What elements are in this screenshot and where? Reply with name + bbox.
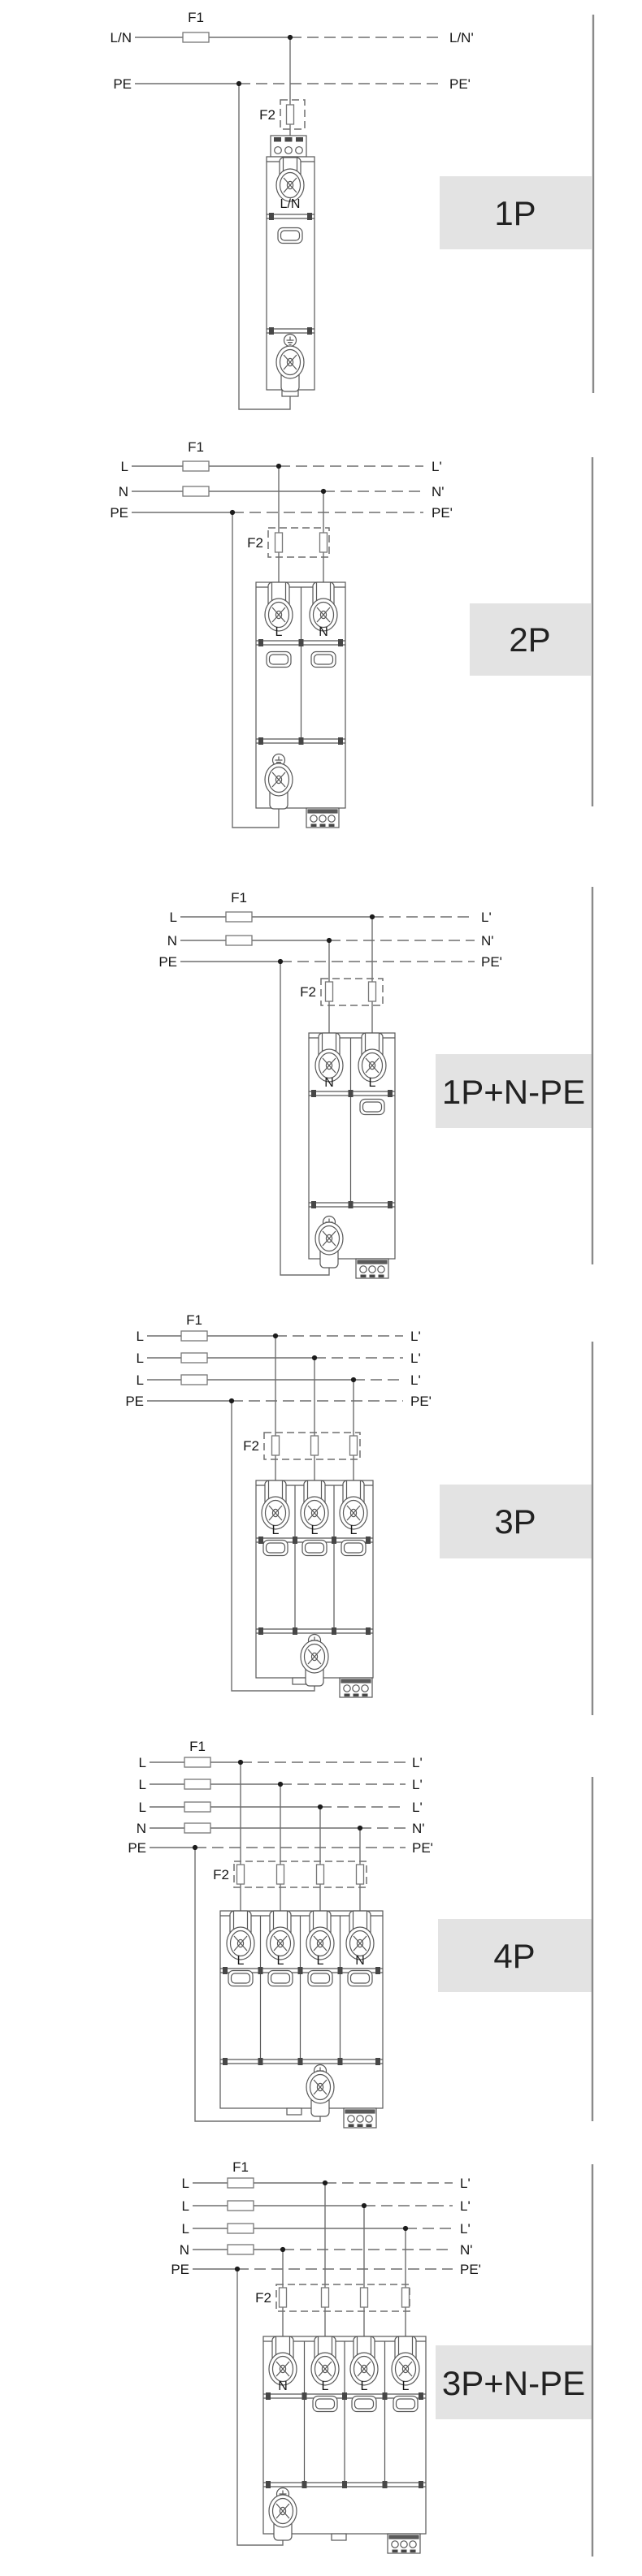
section-4p: L L' L L' L L' N N' PE PE' F1 F2 L L L N… [128, 1739, 592, 2128]
bottom-connector [306, 808, 339, 828]
indicator-window [311, 652, 336, 668]
supply-line-dashed [232, 1336, 403, 1401]
clip [258, 1537, 263, 1544]
line-label-left: PE [110, 505, 128, 521]
f1-label: F1 [188, 439, 204, 455]
line-label-right: PE' [449, 76, 471, 92]
f2-label: F2 [259, 107, 275, 123]
f1-fuse-icon [184, 1757, 210, 1767]
f2-fuse-icon [350, 1436, 358, 1455]
line-label-right: L' [460, 2221, 471, 2237]
line-label-left: L/N [111, 30, 132, 45]
indicator-window [348, 1971, 372, 1986]
junction-dot [229, 1398, 234, 1403]
badge-label: 3P+N-PE [442, 2364, 585, 2402]
supply-line-solid [180, 917, 372, 962]
badge-label: 2P [509, 620, 550, 659]
clip [293, 1537, 297, 1544]
f2-fuse-icon [237, 1865, 245, 1884]
f2-label: F2 [300, 984, 316, 1000]
f2-label: F2 [247, 535, 263, 551]
f1-fuse-icon [181, 1331, 207, 1341]
clip [332, 1627, 336, 1635]
line-label-left: L [137, 1329, 144, 1344]
junction-dot [351, 1377, 356, 1382]
supply-line-solid [135, 37, 290, 84]
clip [299, 737, 304, 745]
line-label-right: L' [412, 1777, 423, 1792]
clip [366, 1537, 371, 1544]
junction-dot [278, 959, 283, 964]
f1-fuse-icon [184, 1802, 210, 1812]
screw-terminal-icon [265, 763, 293, 796]
clip [223, 2058, 228, 2065]
junction-dot [288, 35, 293, 40]
clip [366, 1627, 371, 1635]
bottom-connector [340, 1678, 372, 1697]
f2-fuse-icon [369, 982, 376, 1001]
badge-label: 4P [493, 1937, 535, 1975]
f2-fuse-box [276, 2284, 410, 2311]
terminal-label: L [311, 1524, 319, 1537]
junction-dot [403, 2226, 408, 2231]
clip [269, 213, 274, 220]
screw-terminal-icon [306, 2071, 334, 2103]
section-3pn-pe: L L' L L' L L' N N' PE PE' F1 F2 N L L L… [171, 2159, 592, 2557]
f2-fuse-icon [361, 2288, 368, 2307]
f1-fuse-icon [184, 1823, 210, 1833]
line-label-right: PE' [412, 1840, 433, 1856]
f1-label: F1 [186, 1312, 202, 1328]
screw-terminal-icon [315, 1222, 343, 1255]
f1-fuse-icon [183, 461, 209, 471]
indicator-window [228, 1971, 253, 1986]
terminal-label: L [272, 1524, 280, 1537]
line-label-right: L' [410, 1351, 421, 1366]
f1-label: F1 [231, 890, 247, 905]
indicator-window [278, 228, 302, 244]
clip [383, 2392, 388, 2400]
junction-dot [278, 1782, 283, 1787]
clip [266, 2481, 271, 2488]
junction-dot [321, 489, 326, 494]
clip [302, 2481, 307, 2488]
diagram-canvas: L/N L/N' PE PE' F1 F2 L/N 1P [0, 0, 642, 2576]
line-label-right: N' [432, 484, 445, 499]
screw-terminal-icon [276, 169, 304, 201]
f1-label: F1 [232, 2159, 249, 2175]
f2-fuse-icon [277, 1865, 284, 1884]
line-label-left: L [182, 2176, 189, 2191]
drop-wire [279, 466, 323, 586]
f1-fuse-icon [184, 1779, 210, 1789]
clip [419, 2392, 423, 2400]
junction-dot [193, 1845, 197, 1850]
f2-fuse-icon [287, 105, 294, 124]
f2-fuse-icon [317, 1865, 324, 1884]
junction-dot [370, 914, 375, 919]
line-label-right: L/N' [449, 30, 474, 45]
bottom-connector [388, 2534, 420, 2553]
section-1pn-pe: L L' N N' PE PE' F1 F2 N L 1P+N-PE [158, 887, 592, 1278]
clip [223, 1967, 228, 1974]
terminal-label: L [317, 1954, 324, 1968]
line-label-right: L' [412, 1800, 423, 1815]
supply-line-solid [147, 1336, 354, 1401]
line-label-right: L' [460, 2198, 471, 2214]
clip [338, 737, 343, 745]
terminal-label: L [361, 2379, 368, 2393]
indicator-window [393, 2397, 418, 2412]
clip [375, 1967, 380, 1974]
f2-fuse-box [234, 1861, 367, 1887]
line-label-right: L' [432, 459, 442, 474]
line-label-right: L' [460, 2176, 471, 2191]
line-label-right: N' [481, 933, 494, 949]
line-label-left: L [137, 1351, 144, 1366]
spd-device-2p [256, 582, 345, 828]
junction-dot [327, 938, 332, 943]
line-label-left: PE [158, 954, 177, 970]
line-label-left: N [119, 484, 128, 499]
indicator-window [263, 1541, 288, 1556]
indicator-window [267, 652, 291, 668]
line-label-left: N [137, 1821, 146, 1836]
terminal-label: L [350, 1524, 358, 1537]
clip [258, 639, 263, 646]
f1-label: F1 [188, 10, 204, 25]
f2-fuse-icon [402, 2288, 410, 2307]
clip [375, 2058, 380, 2065]
spd-device-1pn [309, 1033, 395, 1278]
badge-label: 1P+N-PE [442, 1073, 585, 1111]
clip [332, 1537, 336, 1544]
f1-fuse-icon [183, 486, 209, 496]
junction-dot [323, 2181, 328, 2185]
clip [338, 639, 343, 646]
line-label-left: PE [128, 1840, 146, 1856]
clip [269, 327, 274, 335]
clip [342, 2392, 347, 2400]
line-label-left: L [137, 1372, 144, 1388]
f2-label: F2 [243, 1438, 259, 1454]
line-label-right: L' [410, 1329, 421, 1344]
indicator-window [302, 1541, 327, 1556]
terminal-label: L [402, 2379, 410, 2393]
clip [258, 2058, 263, 2065]
f2-fuse-icon [311, 1436, 319, 1455]
supply-line-dashed [239, 37, 441, 84]
bottom-connector [344, 2108, 376, 2128]
line-label-right: PE' [460, 2262, 481, 2277]
line-label-left: N [180, 2242, 189, 2258]
supply-line-solid [132, 466, 323, 512]
clip [293, 1627, 297, 1635]
line-label-left: L [139, 1800, 146, 1815]
section-3p: L L' L L' L L' PE PE' F1 F2 L L L 3P [125, 1312, 592, 1715]
spd-device-4p [220, 1911, 383, 2128]
bottom-connector [356, 1259, 388, 1278]
f1-fuse-icon [181, 1353, 207, 1363]
clip [388, 1090, 393, 1097]
clip [338, 1967, 343, 1974]
f1-label: F1 [189, 1739, 206, 1754]
line-label-right: PE' [432, 505, 453, 521]
terminal-label: L [277, 1954, 284, 1968]
line-label-left: PE [125, 1394, 144, 1409]
f1-fuse-icon [228, 2245, 254, 2254]
clip [338, 2058, 343, 2065]
terminal-label: L/N [280, 197, 301, 211]
junction-dot [318, 1804, 323, 1809]
indicator-window [352, 2397, 376, 2412]
clip [349, 1090, 354, 1097]
f2-fuse-icon [275, 533, 283, 552]
line-label-left: PE [113, 76, 132, 92]
f1-fuse-icon [228, 2201, 254, 2211]
supply-line-dashed [280, 917, 475, 962]
supply-line-dashed [232, 466, 423, 512]
top-connector [271, 136, 306, 157]
clip [388, 1201, 393, 1208]
f1-fuse-icon [181, 1375, 207, 1385]
terminal-label: L [322, 2379, 329, 2393]
clip [419, 2481, 423, 2488]
clip [258, 737, 263, 745]
f2-fuse-icon [326, 982, 333, 1001]
clip [311, 1201, 316, 1208]
clip [307, 213, 312, 220]
line-label-left: L [182, 2198, 189, 2214]
junction-dot [230, 510, 235, 515]
spd-device-3p [256, 1480, 373, 1697]
f2-label: F2 [255, 2290, 271, 2306]
line-label-left: L [170, 910, 177, 925]
supply-line-dashed [195, 1762, 406, 1848]
f2-fuse-icon [280, 2288, 287, 2307]
ground-screw-icon [284, 335, 297, 347]
f2-fuse-icon [357, 1865, 364, 1884]
terminal-label: N [355, 1954, 365, 1968]
f2-label: F2 [213, 1867, 229, 1882]
line-label-right: N' [460, 2242, 473, 2258]
f2-fuse-icon [272, 1436, 280, 1455]
junction-dot [312, 1355, 317, 1360]
indicator-window [313, 2397, 337, 2412]
clip [349, 1201, 354, 1208]
wiring-diagram-sheet: L/N L/N' PE PE' F1 F2 L/N 1P [0, 0, 642, 2576]
line-label-left: L [182, 2221, 189, 2237]
terminal-label: L [275, 625, 283, 639]
terminal-label: L [369, 1076, 376, 1090]
f2-fuse-icon [320, 533, 328, 552]
f1-fuse-icon [228, 2178, 254, 2188]
clip [298, 2058, 303, 2065]
f1-fuse-icon [228, 2224, 254, 2233]
section-1p: L/N L/N' PE PE' F1 F2 L/N 1P [111, 10, 593, 409]
line-label-right: L' [410, 1372, 421, 1388]
f1-fuse-icon [183, 32, 209, 42]
terminal-label: N [278, 2379, 288, 2393]
junction-dot [280, 2247, 285, 2252]
drop-wire [329, 917, 372, 1035]
screw-terminal-icon [276, 346, 304, 378]
junction-dot [276, 464, 281, 469]
junction-dot [273, 1333, 278, 1338]
line-label-left: L [121, 459, 128, 474]
screw-terminal-icon [301, 1640, 328, 1673]
line-label-right: PE' [410, 1394, 432, 1409]
indicator-window [360, 1100, 384, 1115]
supply-line-dashed [237, 2183, 453, 2269]
line-label-right: N' [412, 1821, 425, 1836]
clip [298, 1967, 303, 1974]
supply-line-solid [193, 2183, 406, 2269]
clip [299, 639, 304, 646]
indicator-window [308, 1971, 332, 1986]
clip [266, 2392, 271, 2400]
line-label-left: N [167, 933, 177, 949]
line-label-left: L [139, 1755, 146, 1770]
screw-terminal-icon [269, 2495, 297, 2527]
line-label-right: PE' [481, 954, 502, 970]
clip [307, 327, 312, 335]
indicator-window [268, 1971, 293, 1986]
terminal-label: L [237, 1954, 245, 1968]
line-label-right: L' [481, 910, 492, 925]
junction-dot [238, 1760, 243, 1765]
clip [342, 2481, 347, 2488]
spd-device-3pn [263, 2336, 426, 2553]
clip [383, 2481, 388, 2488]
junction-dot [235, 2267, 240, 2271]
badge-label: 3P [494, 1502, 536, 1541]
f1-fuse-icon [226, 936, 252, 945]
terminal-label: N [324, 1076, 334, 1090]
clip [258, 1627, 263, 1635]
supply-line-solid [150, 1762, 360, 1848]
clip [258, 1967, 263, 1974]
line-label-right: L' [412, 1755, 423, 1770]
spd-device-1p [267, 136, 314, 396]
f1-fuse-icon [226, 912, 252, 922]
f2-fuse-icon [322, 2288, 329, 2307]
badge-label: 1P [494, 194, 536, 232]
clip [311, 1090, 316, 1097]
junction-dot [362, 2203, 367, 2208]
line-label-left: PE [171, 2262, 189, 2277]
indicator-window [341, 1541, 366, 1556]
section-2p: L L' N N' PE PE' F1 F2 L N 2P [110, 439, 592, 828]
clip [302, 2392, 307, 2400]
line-label-left: L [139, 1777, 146, 1792]
junction-dot [236, 81, 241, 86]
junction-dot [358, 1826, 362, 1830]
terminal-label: N [319, 625, 328, 639]
